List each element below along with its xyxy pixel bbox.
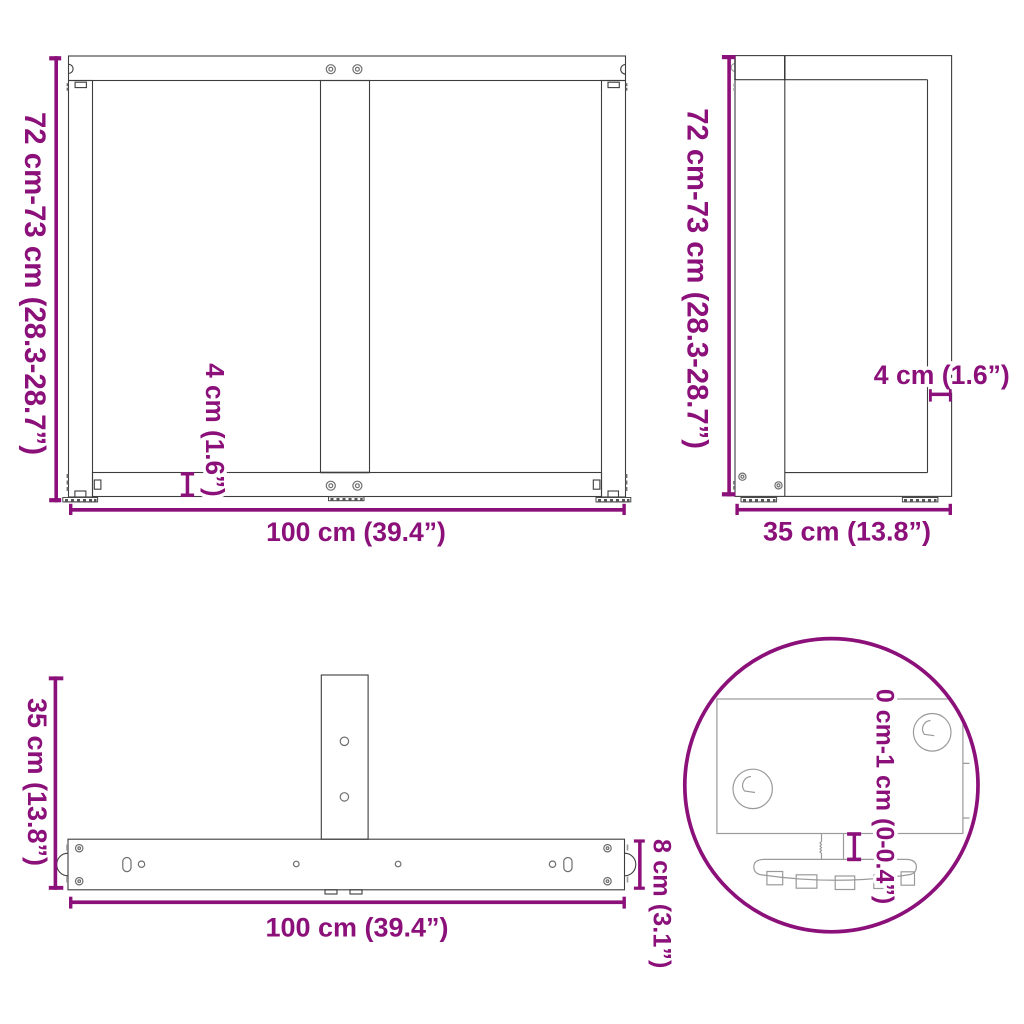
svg-text:0 cm-1 cm (0-0.4”): 0 cm-1 cm (0-0.4”) <box>871 689 899 904</box>
svg-text:100 cm (39.4”): 100 cm (39.4”) <box>266 517 446 547</box>
svg-text:4 cm (1.6”): 4 cm (1.6”) <box>874 360 1010 390</box>
svg-text:100 cm (39.4”): 100 cm (39.4”) <box>265 912 448 942</box>
svg-text:8 cm (3.1”): 8 cm (3.1”) <box>647 839 675 968</box>
svg-text:72 cm-73 cm (28.3-28.7”): 72 cm-73 cm (28.3-28.7”) <box>18 112 51 455</box>
svg-text:72 cm-73 cm (28.3-28.7”): 72 cm-73 cm (28.3-28.7”) <box>681 108 713 449</box>
svg-text:35 cm (13.8”): 35 cm (13.8”) <box>763 517 931 547</box>
svg-text:4 cm (1.6”): 4 cm (1.6”) <box>200 363 230 496</box>
svg-text:35 cm (13.8”): 35 cm (13.8”) <box>22 698 52 866</box>
